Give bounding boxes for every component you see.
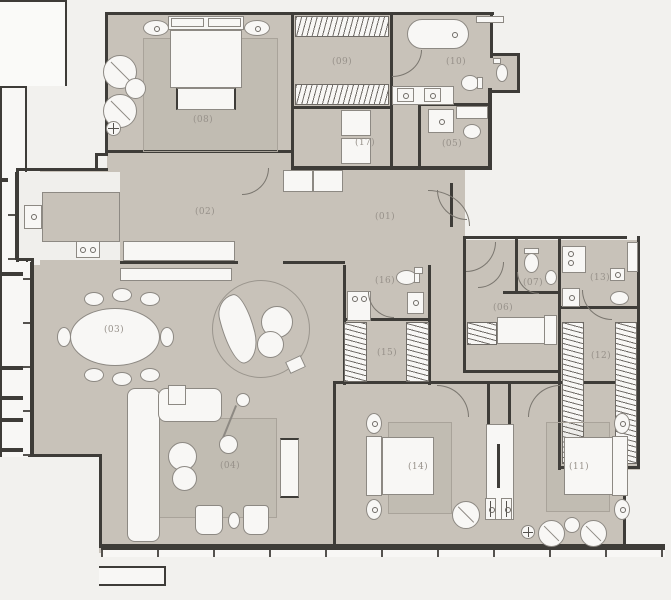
cabinet — [313, 170, 343, 192]
room-label-16: (16) — [375, 276, 395, 286]
desk-mirror — [497, 444, 500, 488]
hanger-rail-icon — [295, 16, 389, 37]
chair — [112, 288, 132, 302]
nightstand — [614, 499, 630, 520]
shower-icon — [428, 109, 454, 133]
pillow — [366, 436, 382, 496]
pillow — [544, 315, 557, 345]
bed-icon — [497, 317, 545, 344]
room-label-06: (06) — [493, 303, 513, 313]
armchair-icon — [452, 501, 480, 529]
chair — [112, 372, 132, 386]
wall — [283, 261, 345, 264]
toilet-icon — [524, 248, 539, 254]
stool-icon — [501, 498, 512, 520]
pouf — [257, 331, 284, 358]
toilet-icon — [463, 124, 481, 139]
room-label-05: (05) — [442, 139, 462, 149]
room-label-13: (13) — [590, 273, 610, 283]
wall — [390, 106, 393, 170]
media-unit — [280, 438, 299, 498]
floor-inner-corridor — [430, 265, 465, 375]
chair — [140, 292, 160, 306]
armchair-icon — [538, 520, 565, 547]
room-label-14: (14) — [408, 462, 428, 472]
floor-lamp-icon — [521, 525, 535, 539]
window-strip-west — [23, 262, 32, 456]
pillow — [171, 18, 204, 27]
nightstand — [366, 499, 382, 520]
nightstand — [366, 413, 382, 434]
chair — [84, 368, 104, 382]
cabinet — [283, 170, 313, 192]
room-label-11: (11) — [569, 462, 589, 472]
entry-vestibule — [0, 0, 67, 86]
floor-lamp-icon — [219, 435, 238, 454]
bed-bench — [176, 88, 236, 110]
wall — [99, 454, 102, 548]
side-table — [610, 268, 625, 281]
pillow — [208, 18, 241, 27]
shelf — [476, 16, 504, 23]
dining-table-icon — [70, 308, 160, 366]
wall — [29, 454, 102, 457]
room-label-12: (12) — [591, 351, 611, 361]
armchair-icon — [580, 520, 607, 547]
side-table — [168, 385, 186, 405]
room-label-09: (09) — [332, 57, 352, 67]
room-label-07: (07) — [523, 278, 543, 288]
hanger-rail-icon — [295, 84, 389, 105]
sink-icon — [545, 270, 557, 285]
toilet-icon — [610, 291, 629, 305]
kitchen-island — [42, 192, 120, 242]
low-cabinet — [123, 241, 235, 261]
wall — [463, 236, 627, 239]
bathtub-icon — [407, 19, 469, 49]
fixture — [493, 58, 501, 64]
toilet-icon — [496, 64, 508, 82]
floor-lamp-icon — [236, 393, 250, 407]
console-cabinet — [120, 268, 232, 281]
wall — [291, 12, 294, 170]
wall — [418, 103, 421, 170]
nightstand — [244, 20, 270, 36]
room-label-08: (08) — [193, 115, 213, 125]
wall — [490, 90, 520, 93]
chair — [84, 292, 104, 306]
wall — [515, 238, 518, 294]
cooktop-icon — [76, 241, 100, 258]
hanger-rail-icon — [406, 322, 429, 382]
pillow — [612, 436, 628, 496]
hanger-rail-icon — [467, 322, 497, 345]
window-niche-east — [627, 242, 638, 272]
room-label-02: (02) — [195, 207, 215, 217]
shelf-box — [341, 110, 371, 136]
chair — [140, 368, 160, 382]
chair — [57, 327, 71, 347]
room-label-17: (17) — [355, 138, 375, 148]
armchair-icon — [195, 505, 223, 535]
wall — [293, 106, 392, 109]
hanger-rail-icon — [344, 322, 367, 382]
stool-icon — [485, 498, 496, 520]
fixture — [414, 267, 423, 274]
toilet-icon — [477, 77, 483, 89]
room-label-03: (03) — [104, 325, 124, 335]
wall — [508, 384, 511, 426]
wall — [333, 381, 336, 548]
coffee-table-icon — [172, 466, 197, 491]
room-label-15: (15) — [377, 348, 397, 358]
room-label-01: (01) — [375, 212, 395, 222]
sink-icon — [24, 205, 42, 229]
counter — [562, 246, 586, 273]
sink-icon — [397, 88, 414, 102]
sofa-icon — [127, 388, 160, 542]
side-table — [125, 78, 146, 99]
wall — [105, 12, 494, 15]
chair — [160, 327, 174, 347]
side-table — [564, 517, 580, 533]
wall — [463, 370, 561, 373]
nightstand — [143, 20, 169, 36]
room-label-04: (04) — [220, 461, 240, 471]
wall — [490, 53, 520, 56]
wall — [517, 53, 520, 93]
floor-lamp-icon — [106, 121, 121, 136]
vanity — [456, 106, 488, 119]
side-table — [228, 512, 240, 529]
wall — [16, 168, 108, 171]
toilet-icon — [524, 253, 539, 273]
column — [0, 86, 27, 180]
wall — [120, 261, 238, 264]
sink-icon — [424, 88, 441, 102]
armchair-icon — [243, 505, 269, 535]
wall — [487, 384, 490, 426]
floor-plan: (01) (02) (03) (04) (05) (06) (07) (08) … — [0, 0, 671, 600]
sink-cabinet — [407, 292, 424, 314]
outside-corner — [0, 457, 99, 600]
wall — [488, 88, 492, 170]
room-label-10: (10) — [446, 57, 466, 67]
window-strip-kitchen — [8, 172, 17, 260]
window-strip-south — [101, 548, 665, 557]
washer-icon — [562, 288, 580, 307]
nightstand — [614, 413, 630, 434]
bed-icon — [170, 30, 242, 88]
